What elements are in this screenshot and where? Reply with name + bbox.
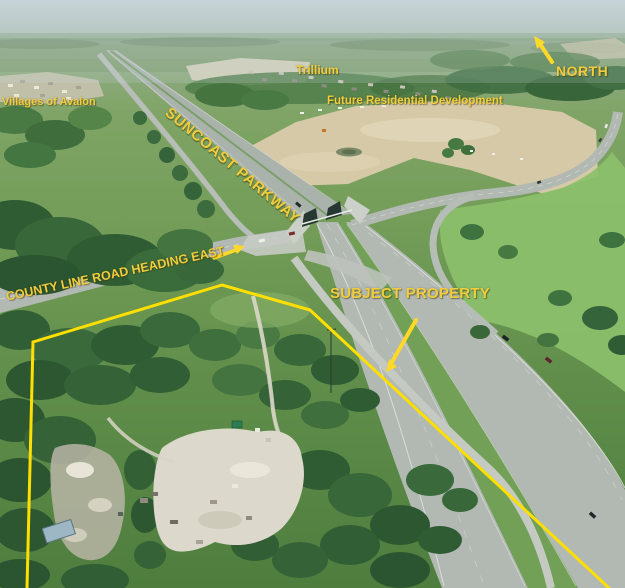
aerial-photo-exhibit: Villages of Avalon Trillium Future Resid… xyxy=(0,0,625,588)
equipment xyxy=(232,421,242,428)
label-villages-of-avalon: Villages of Avalon xyxy=(2,97,96,108)
label-future-residential-development: Future Residential Development xyxy=(327,96,503,108)
label-north: NORTH xyxy=(556,64,608,78)
aerial-photo xyxy=(0,0,625,588)
label-subject-property: SUBJECT PROPERTY xyxy=(330,286,490,301)
label-trillium: Trillium xyxy=(296,64,339,76)
